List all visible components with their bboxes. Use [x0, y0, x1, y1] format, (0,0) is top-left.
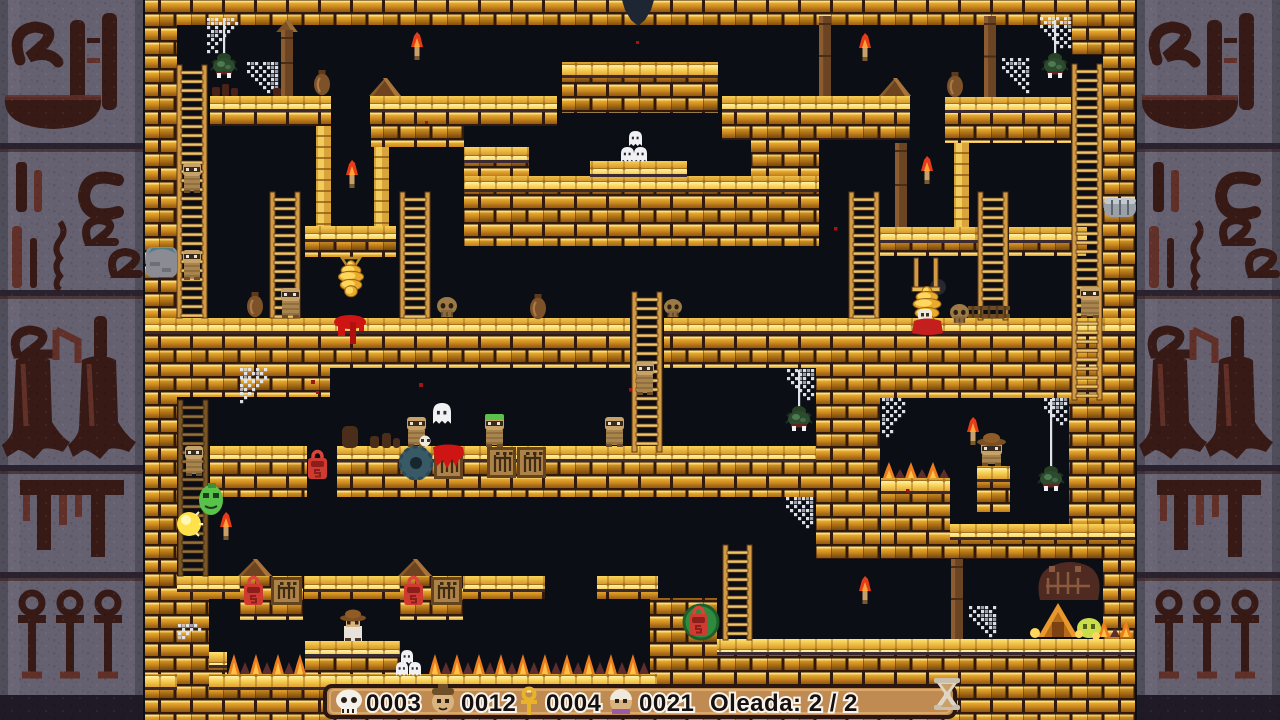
svg-text:0012: 0012: [461, 690, 516, 717]
svg-text:0021: 0021: [639, 690, 694, 717]
svg-text:0003: 0003: [366, 690, 421, 717]
svg-text:0004: 0004: [546, 690, 602, 717]
svg-text:Oleada: 2 / 2: Oleada: 2 / 2: [710, 690, 858, 717]
